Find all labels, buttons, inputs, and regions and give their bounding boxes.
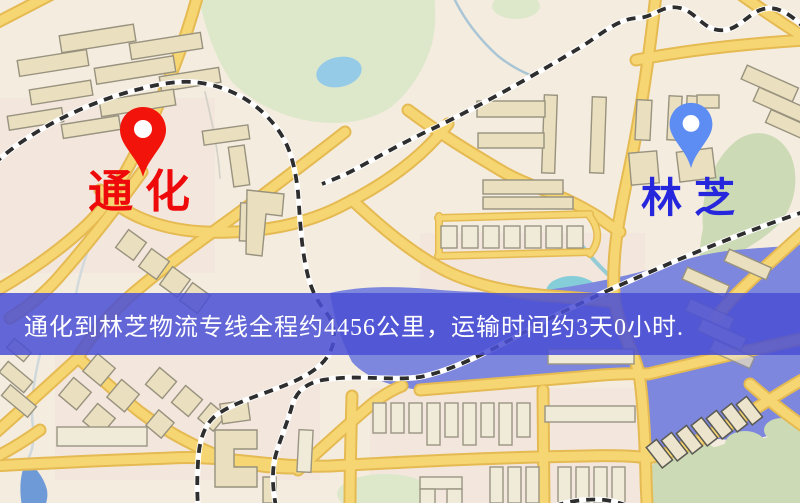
route-info-text: 通化到林芝物流专线全程约4456公里，运输时间约3天0小时. bbox=[0, 307, 684, 342]
destination-pin-icon[interactable] bbox=[668, 102, 714, 169]
destination-pin-shape bbox=[670, 103, 713, 168]
map-view[interactable]: 通化 林芝 通化到林芝物流专线全程约4456公里，运输时间约3天0小时. bbox=[0, 0, 800, 503]
origin-city-label: 通化 bbox=[88, 170, 202, 215]
map-canvas[interactable] bbox=[0, 0, 800, 503]
destination-city-label: 林芝 bbox=[641, 178, 747, 219]
route-info-banner: 通化到林芝物流专线全程约4456公里，运输时间约3天0小时. bbox=[0, 293, 800, 355]
